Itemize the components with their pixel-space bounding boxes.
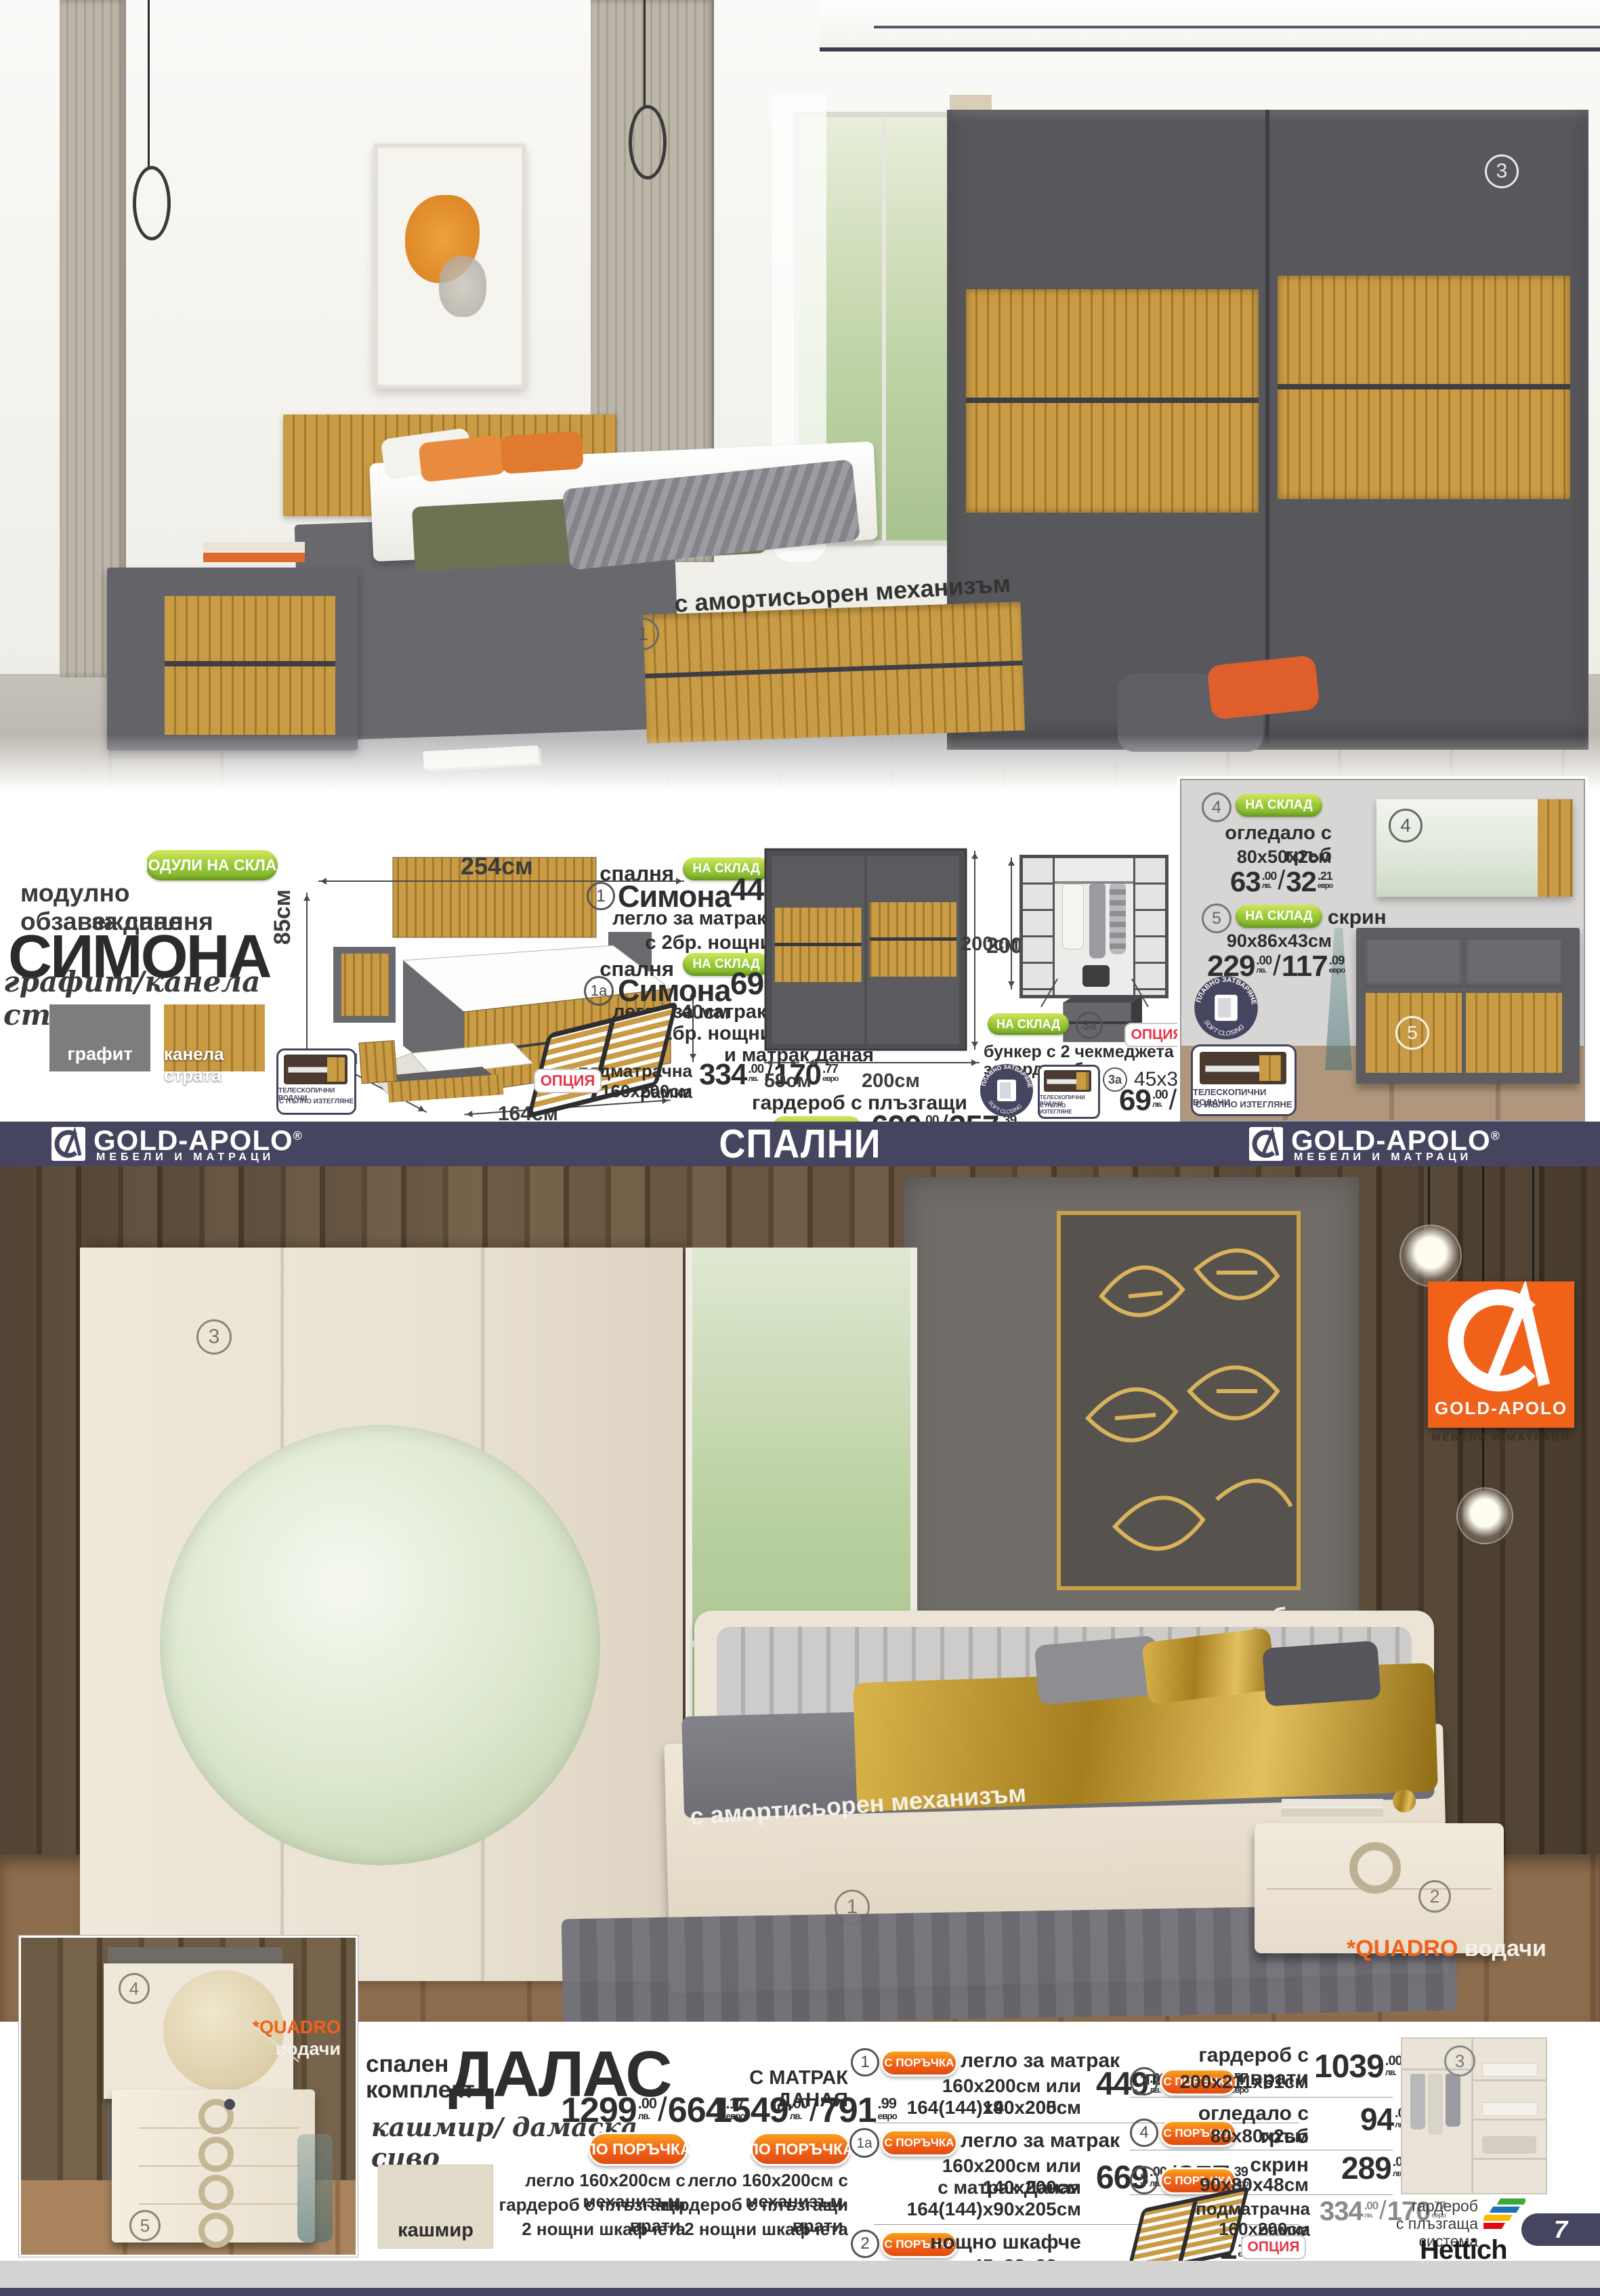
page-number: 7 <box>1554 2215 1567 2244</box>
interior-right-shelves <box>1133 858 1165 995</box>
m5-eur: 117 <box>1282 954 1328 979</box>
quadro-word: водачи <box>239 2038 341 2060</box>
list-l2-order: С ПОРЪЧКА <box>881 2129 958 2156</box>
inset-m5-name: скрин <box>1328 906 1387 929</box>
list-l1-num: 1 <box>851 2048 879 2077</box>
inset-m4-price: 63.00лв./32.21евро <box>1230 870 1332 894</box>
nightstand-photo <box>107 568 358 750</box>
swatch-kanela-label: канела страта <box>164 1044 265 1086</box>
nightstand-drawer-gap <box>165 661 335 666</box>
hettich-stripes-icon <box>1483 2197 1525 2235</box>
wardrobe-d-arrow <box>764 1062 799 1063</box>
wardrobe-band-divider-left <box>966 398 1259 403</box>
frame-lv-dec: .00 <box>748 1063 763 1075</box>
dalas-nightstand: 2 <box>1255 1823 1504 1953</box>
quadro-word: водачи <box>1465 1936 1546 1961</box>
liftbed-diagram <box>347 1016 536 1107</box>
eur-label: евро <box>822 1075 838 1084</box>
combo2-lv-dec: .00 <box>790 2096 808 2111</box>
lv-label: лв. <box>1262 882 1271 891</box>
telescopic-rail <box>288 1067 330 1073</box>
bunker-lv: 69 <box>1119 1088 1151 1113</box>
hw-clothes-1 <box>1410 2074 1425 2129</box>
interior-h-arrow <box>1011 857 1012 990</box>
dresser-ring-4 <box>198 2213 234 2248</box>
f2-lv-dec: .00 <box>1364 2201 1378 2212</box>
bulb-cord-1 <box>1428 1166 1430 1226</box>
inset-mirror-wood-strip <box>1538 799 1573 897</box>
combo2-lv: 1549 <box>713 2096 788 2125</box>
marker-dresser: 5 <box>129 2210 161 2241</box>
quadro-pointer-dot <box>224 2099 235 2110</box>
inset-panel-top: 4 5 4 НА СКЛАД огледало с гръб 80х50х2см… <box>1180 779 1585 1122</box>
footer-edge <box>0 2288 1600 2296</box>
combo1-order-badge: ПО ПОРЪЧКА <box>588 2132 688 2166</box>
hw-linen-1 <box>1482 2063 1538 2077</box>
dim-height-label: 85см <box>270 889 296 945</box>
hettich-caption-1: гардероб <box>1382 2197 1478 2215</box>
telescopic-front <box>327 1057 345 1082</box>
telescopic-rail <box>1205 1065 1261 1072</box>
frame2-option-badge: ОПЦИЯ <box>1241 2235 1306 2259</box>
dim-height-arrow <box>306 893 308 1062</box>
interior-diagram <box>1019 855 1169 998</box>
m4-eur: 32 <box>1286 870 1316 894</box>
lv-label: лв. <box>1364 2212 1373 2220</box>
swatch-kanela: канела страта <box>164 1004 265 1071</box>
m4-lv-dec: .00 <box>1262 870 1277 883</box>
list-r2-num: 4 <box>1130 2119 1158 2147</box>
pillow-orange-2 <box>500 431 584 474</box>
brand-reg: ® <box>1491 1129 1500 1143</box>
frame-option-badge: ОПЦИЯ <box>534 1069 602 1093</box>
catalog-page: 3 с амортисьорен механизъм 1 МОДУЛИ НА С… <box>0 0 1600 2296</box>
inset-m5-stock: НА СКЛАД <box>1236 905 1322 928</box>
interior-h-label: 200см <box>961 933 1019 956</box>
eur-label: евро <box>1329 966 1345 976</box>
bunker-lv-dec: .00 <box>1152 1088 1168 1101</box>
lv-label: лв. <box>790 2111 802 2122</box>
orange-logo-sub: МЕБЕЛИ И МАТРАЦИ <box>1428 1432 1574 1443</box>
list-l3-name: нощно шкафче <box>851 2231 1081 2254</box>
telescopic-front <box>1259 1055 1281 1081</box>
quadro-star: *QUADRO <box>1347 1936 1458 1961</box>
m4-lv: 63 <box>1230 870 1261 894</box>
telescopic-text2: С ПЪЛНО ИЗТЕГЛЯНЕ <box>1040 1103 1098 1115</box>
wardrobe-w-arrow <box>806 1062 980 1063</box>
hettich-caption-2: с плъзгаща <box>1382 2215 1478 2233</box>
telescopic-badge-bunker: ТЕЛЕСКОПИЧНИ ВОДАЧИ С ПЪЛНО ИЗТЕГЛЯНЕ <box>1038 1065 1100 1119</box>
list-r1-num: 3 <box>1130 2067 1158 2096</box>
combo1-lv-dec: .00 <box>638 2096 656 2111</box>
soft-close-badge-mid: ПЛАВНО ЗАТВАРЯНЕ SOFT CLOSING <box>980 1063 1034 1118</box>
wardrobe-door-seam <box>1265 110 1269 750</box>
telescopic-drawer-art <box>1200 1052 1286 1084</box>
hw-clothes-2 <box>1428 2074 1443 2135</box>
pendant-light-ring <box>133 166 171 240</box>
list-r3-num: 5 <box>1130 2166 1158 2194</box>
wardrobe-diagram <box>764 848 981 1055</box>
inset-panel-bottom: 4 5 *QUADRO водачи <box>19 1936 358 2257</box>
wardrobe-band-divider-right <box>1278 384 1570 389</box>
footer-strip <box>0 2261 1600 2288</box>
frame-lv: 334 <box>699 1062 746 1087</box>
inset-b-vase <box>297 2134 333 2242</box>
frame-eur-dec: .77 <box>822 1063 838 1075</box>
round-mirror <box>160 1425 600 1865</box>
floor-pillow-orange <box>1206 655 1320 720</box>
dalas-wardrobe: 3 <box>80 1248 683 1981</box>
pendant-light-ring-2 <box>629 105 667 179</box>
interior-bag <box>1082 965 1110 987</box>
m5-lv-dec: .00 <box>1256 954 1271 966</box>
inset-m5-size: 90х86х43см <box>1181 931 1332 952</box>
combo1-lv: 1299 <box>561 2096 637 2125</box>
books-stack <box>203 542 305 551</box>
bottom-hero-photo: тапицирана табла 3 с амортисьорен механи… <box>0 1166 1600 2022</box>
gold-sphere <box>1393 1789 1416 1812</box>
wardrobe-d-label: 59см <box>764 1070 812 1092</box>
bunker-stock-badge: НА СКЛАД <box>988 1013 1069 1035</box>
inset-chest-marker: 5 <box>1395 1016 1429 1050</box>
pendant-light-cord <box>148 0 150 169</box>
dim-width-label: 254см <box>461 852 533 880</box>
combo2-order-badge: ПО ПОРЪЧКА <box>751 2132 851 2166</box>
section-band: GOLD-APOLO® МЕБЕЛИ И МАТРАЦИ СПАЛНИ GOLD… <box>0 1122 1600 1166</box>
dalas-pre2: комплект <box>366 2077 442 2104</box>
list-divider <box>1130 2194 1393 2195</box>
page-number-tab: 7 <box>1521 2213 1600 2246</box>
inset-m5-num: 5 <box>1202 903 1231 933</box>
eur-label: евро <box>1318 882 1332 891</box>
soft-close-badge-inset: ПЛАВНО ЗАТВАРЯНЕ SOFT CLOSING <box>1194 975 1259 1040</box>
inset-mirror-photo: 4 <box>1376 799 1573 897</box>
brand-logo-right <box>1249 1127 1283 1161</box>
interior-clothes-2 <box>1089 884 1106 958</box>
swatch-graphite: графит <box>49 1004 150 1071</box>
inset-chest-photo: 5 <box>1356 928 1580 1084</box>
inset-m4-num: 4 <box>1202 792 1231 822</box>
hw-clothes-3 <box>1446 2074 1460 2127</box>
swatch-graphite-label: графит <box>49 1044 150 1065</box>
f2-lv: 334 <box>1320 2200 1363 2223</box>
pendant-light-cord-2 <box>644 0 646 108</box>
list-l2-l3: с матрак Даная <box>851 2177 1081 2198</box>
inset-b-dresser: 5 <box>112 2089 315 2242</box>
hw-shelf-3 <box>1473 2158 1546 2160</box>
m5-eur-dec: .09 <box>1329 954 1345 966</box>
hettich-marker: 3 <box>1444 2045 1475 2077</box>
marker-nightstand: 2 <box>1418 1880 1451 1913</box>
hw-linen-2 <box>1482 2102 1538 2116</box>
bulb-3 <box>1456 1487 1513 1544</box>
modules-in-stock-badge: МОДУЛИ НА СКЛАД <box>146 850 278 880</box>
hw-shelf-2 <box>1473 2119 1546 2121</box>
hw-basket <box>1482 2136 1536 2154</box>
list-r2-size: 80х80х2см <box>1160 2125 1309 2147</box>
list-l2-num: 1а <box>849 2128 879 2158</box>
lv-label: лв. <box>638 2111 650 2122</box>
wardrobe-w-label: 200см <box>862 1070 920 1092</box>
inset-mirror-marker: 4 <box>1389 809 1423 843</box>
wall-art-frame <box>374 144 526 389</box>
interior-left-shelves <box>1023 858 1055 995</box>
offer1-num: 1 <box>587 882 615 910</box>
list-l2-name: легло за матрак <box>961 2129 1120 2152</box>
marker-mirror: 4 <box>119 1973 150 2004</box>
telescopic-text2: С ПЪЛНО ИЗТЕГЛЯНЕ <box>278 1098 354 1105</box>
list-divider <box>1130 2097 1393 2098</box>
lv-label: лв. <box>1385 2068 1396 2078</box>
telescopic-drawer-art <box>1044 1070 1091 1092</box>
list-r1-size: 200х211х61см <box>1160 2071 1309 2093</box>
list-l1-l3: 164(144)х90х205см <box>851 2097 1081 2119</box>
gold-leaf-art <box>1057 1211 1301 1590</box>
telescopic-badge-mid: ТЕЛЕСКОПИЧНИ ВОДАЧИ С ПЪЛНО ИЗТЕГЛЯНЕ <box>276 1048 356 1115</box>
telescopic-badge-inset: ТЕЛЕСКОПИЧНИ ВОДАЧИ С ПЪЛНО ИЗТЕГЛЯНЕ <box>1191 1044 1297 1116</box>
inset-chest-drawer2 <box>1466 940 1562 987</box>
dresser-ring-3 <box>198 2175 234 2210</box>
hw-shelf-1 <box>1473 2079 1546 2081</box>
inset-chest-drawer1 <box>1366 940 1462 987</box>
marker-bed-1: 1 <box>627 618 659 650</box>
hettich-wardrobe-photo: 3 <box>1401 2037 1547 2194</box>
wardrobe-photo <box>947 110 1588 750</box>
orange-brand-logo: GOLD-APOLO <box>1428 1281 1574 1428</box>
window-mullion <box>882 117 886 540</box>
inset-m4-stock: НА СКЛАД <box>1236 794 1322 817</box>
lv-label: лв. <box>748 1075 757 1084</box>
list-l1-order: С ПОРЪЧКА <box>881 2049 958 2077</box>
r3-lv: 289 <box>1341 2155 1391 2182</box>
brand-sub-right: МЕБЕЛИ И МАТРАЦИ <box>1294 1151 1472 1164</box>
top-hero-photo: 3 с амортисьорен механизъм 1 <box>0 0 1600 792</box>
bulb-1 <box>1399 1225 1462 1287</box>
telescopic-front <box>1076 1072 1089 1090</box>
dalas-pre1: спален <box>366 2051 442 2078</box>
nightstand-books <box>1282 1799 1383 1807</box>
telescopic-drawer-art <box>284 1055 348 1084</box>
interior-clothes-3 <box>1110 884 1126 954</box>
wall-art-blob-2 <box>439 256 486 317</box>
combo2-line3: 2 нощни шкафчета <box>637 2219 848 2240</box>
inset-m4-size: 80х50х2см <box>1181 847 1332 868</box>
interior-clothes-1 <box>1062 884 1084 950</box>
dresser-ring-2 <box>198 2137 234 2172</box>
bunker-num-marker: 3а <box>1076 1012 1103 1039</box>
r2-lv: 94 <box>1360 2106 1393 2133</box>
orange-logo-wordmark: GOLD-APOLO <box>1428 1398 1574 1419</box>
inset-chest-door2 <box>1466 993 1562 1073</box>
lv-label: лв. <box>1152 1101 1162 1110</box>
marker-wardrobe: 3 <box>196 1319 232 1355</box>
pillow-dark <box>1262 1640 1381 1707</box>
quadro-note-nightstand: *QUADRO водачи <box>1347 1936 1546 1962</box>
ceiling-trim-inner <box>874 0 1600 28</box>
telescopic-text2: С ПЪЛНО ИЗТЕГЛЯНЕ <box>1193 1099 1294 1109</box>
telescopic-rail <box>1047 1079 1078 1084</box>
list-l2-l4: 164(144)х90х205см <box>851 2198 1081 2220</box>
r1-lv-dec: .00 <box>1385 2054 1402 2068</box>
nightstand-ring-handle <box>1349 1842 1401 1894</box>
pillow-gray <box>1034 1635 1161 1705</box>
m4-eur-dec: .21 <box>1318 870 1332 883</box>
r1-lv: 1039 <box>1314 2054 1384 2081</box>
marker-wardrobe-3: 3 <box>1485 154 1519 188</box>
